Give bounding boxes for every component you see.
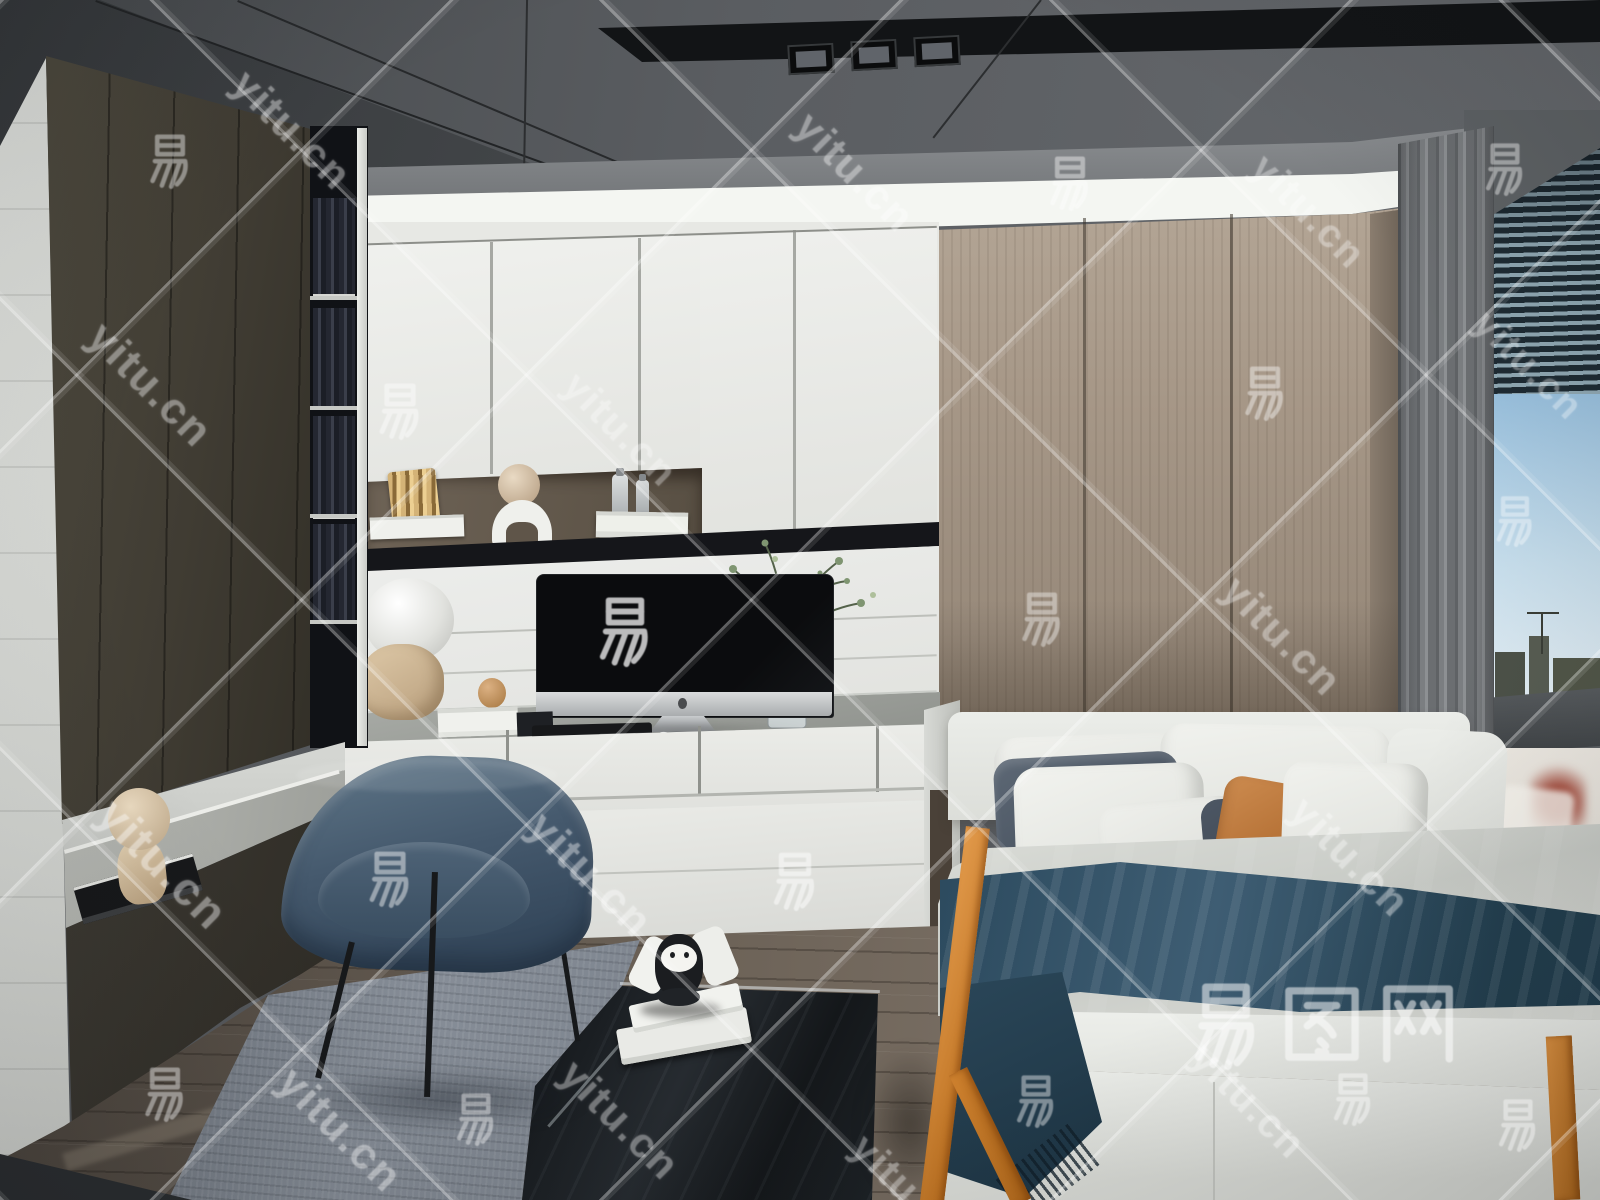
book-spines (313, 524, 355, 623)
toy-figurine-eye (670, 952, 675, 958)
building-silhouette (1495, 652, 1525, 700)
apple-logo (678, 698, 687, 709)
interior-render: 3D interior rendering of a modern bedroo… (0, 0, 1600, 1200)
chair-shadow (292, 1066, 592, 1132)
book-spines (313, 416, 355, 519)
recessed-light (787, 43, 835, 75)
cabinet-door-seam (638, 238, 641, 472)
shelf-edge (310, 514, 360, 518)
book-spines (313, 198, 355, 297)
book-spines (313, 308, 355, 409)
astronaut-figurine (360, 644, 444, 720)
light-inner (796, 50, 827, 68)
toy-figurine-eye (684, 952, 689, 958)
light-inner (922, 42, 953, 60)
doll-figurine-head (108, 788, 170, 850)
bookshelf-front-edge (357, 128, 367, 746)
cabinet-door-seam (490, 242, 493, 474)
toy-figurine-base (658, 988, 700, 1006)
crane-silhouette (1541, 612, 1543, 654)
toy-figurine-face (661, 944, 697, 972)
recessed-light (913, 35, 961, 67)
shelf-edge (310, 620, 360, 624)
drawer-seam (876, 724, 879, 792)
bottle-cap (616, 468, 624, 476)
building-silhouette (1529, 636, 1549, 700)
shelf-edge (310, 406, 360, 410)
niche-books (370, 514, 465, 539)
wood-ball-decor (478, 678, 506, 708)
crane-silhouette (1527, 612, 1559, 614)
cabinet-door-seam (793, 230, 796, 532)
drawer-seam (698, 726, 701, 794)
upper-cabinet-doors (700, 224, 937, 540)
chair-rim-highlight (296, 758, 558, 792)
bottle-cap (639, 474, 646, 481)
upper-cabinet-doors (345, 234, 700, 484)
dark-wardrobe (44, 54, 314, 826)
shelf-edge (310, 296, 360, 300)
bed-base-seam (1213, 1082, 1215, 1200)
recessed-light (850, 39, 898, 71)
light-inner (859, 46, 890, 64)
